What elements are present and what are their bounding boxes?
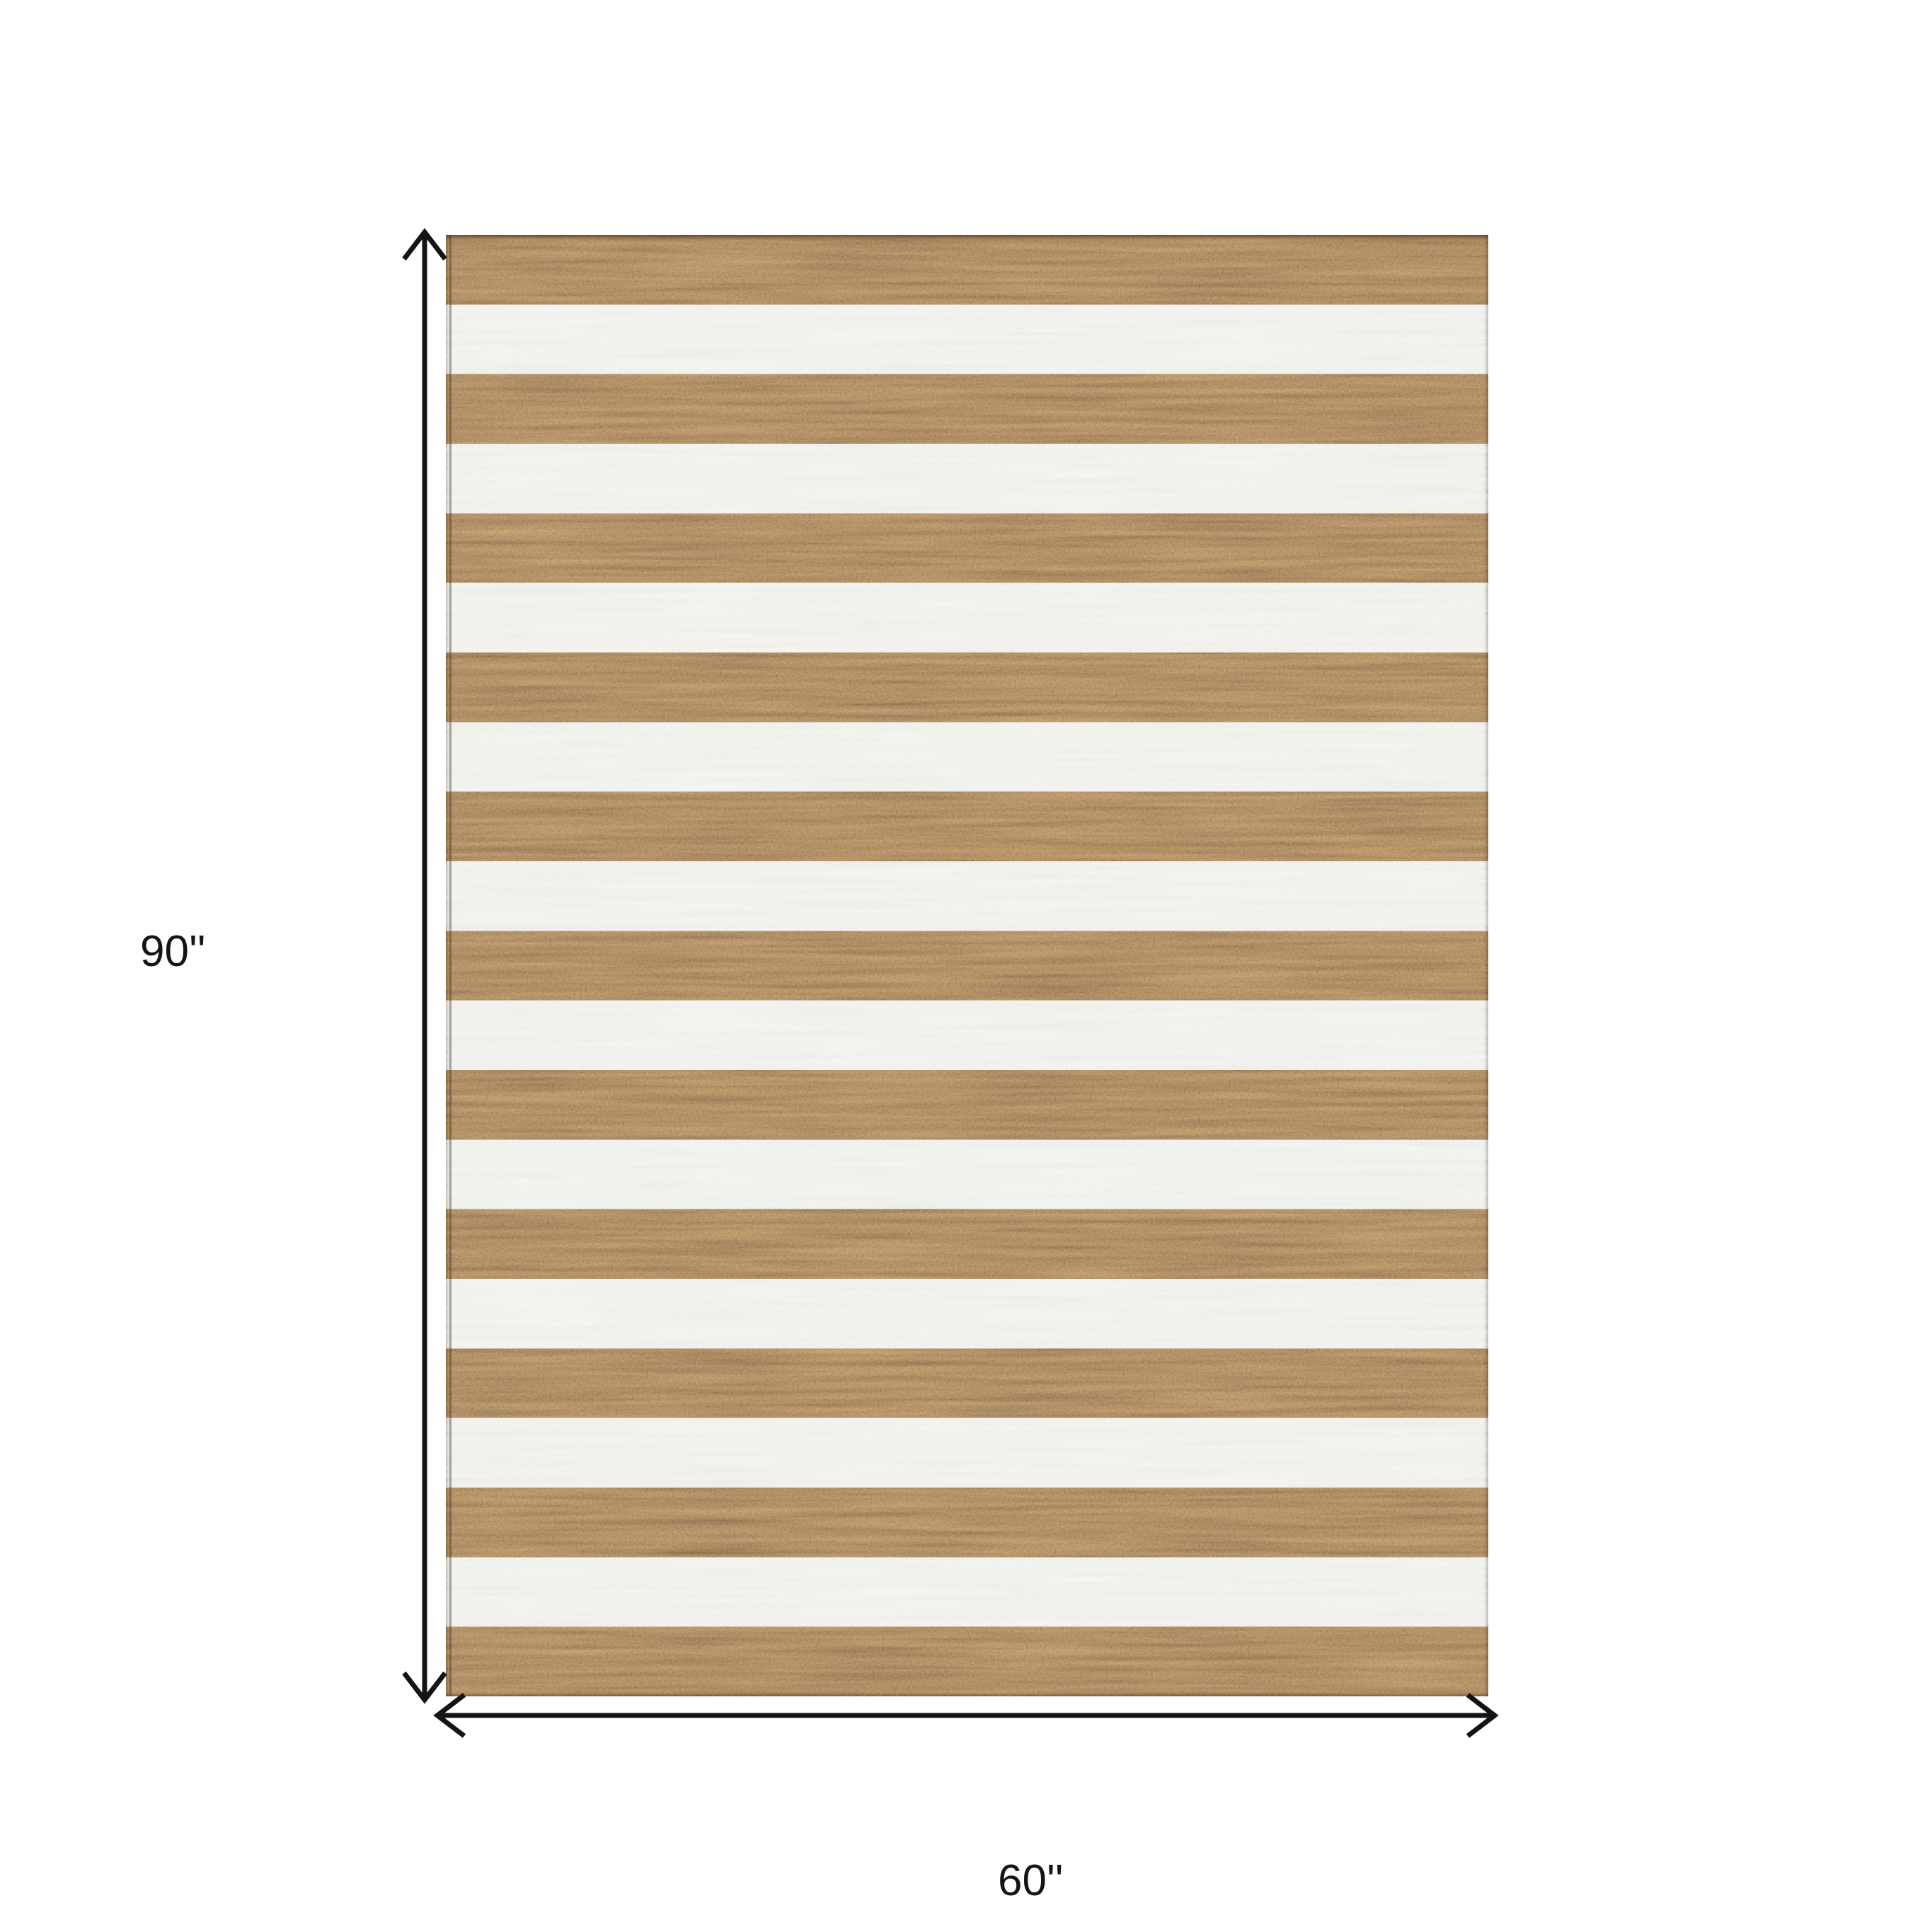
width-dimension-label: 60'': [998, 1859, 1064, 1903]
height-dimension-arrow: [404, 232, 445, 1700]
height-dimension-label: 90'': [140, 930, 206, 974]
width-dimension-arrow: [437, 1695, 1495, 1736]
rug-left-seam: [449, 235, 452, 1696]
rug-fabric-texture: [446, 235, 1488, 1696]
rug-image: [446, 235, 1488, 1696]
product-dimension-diagram: 90'' 60'': [0, 0, 1932, 1932]
